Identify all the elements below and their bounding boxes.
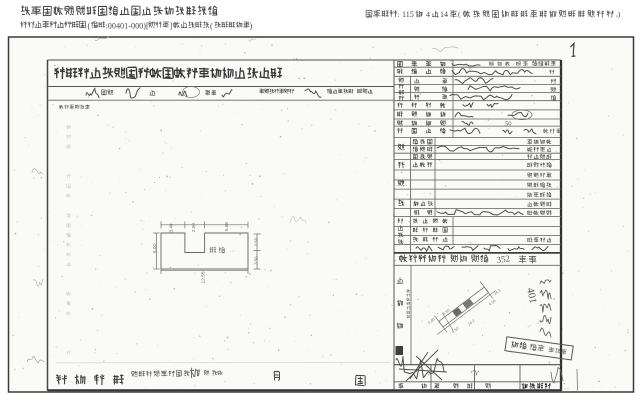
svg-text:14: 14 bbox=[440, 10, 448, 19]
svg-text:(: ( bbox=[88, 22, 91, 31]
svg-text:): ) bbox=[250, 22, 253, 31]
svg-text:3.40: 3.40 bbox=[169, 223, 174, 232]
svg-text:(: ( bbox=[458, 10, 461, 19]
svg-text:6.65: 6.65 bbox=[224, 222, 229, 231]
svg-text:6.00: 6.00 bbox=[152, 244, 157, 253]
svg-text:115: 115 bbox=[402, 10, 414, 19]
svg-text::: : bbox=[398, 11, 400, 19]
svg-text:12.55: 12.55 bbox=[201, 271, 207, 283]
svg-text:,): ,) bbox=[616, 10, 621, 19]
svg-text:(: ( bbox=[210, 22, 213, 31]
svg-text:2.50: 2.50 bbox=[254, 237, 259, 246]
svg-text::00401-000)[: :00401-000)[ bbox=[106, 22, 149, 31]
svg-text:4: 4 bbox=[426, 10, 430, 19]
svg-text:3.50: 3.50 bbox=[254, 256, 259, 265]
svg-text:]: ] bbox=[170, 22, 173, 31]
svg-text:50: 50 bbox=[505, 121, 512, 128]
svg-text:352: 352 bbox=[496, 253, 511, 265]
svg-text:2.50: 2.50 bbox=[191, 223, 196, 232]
